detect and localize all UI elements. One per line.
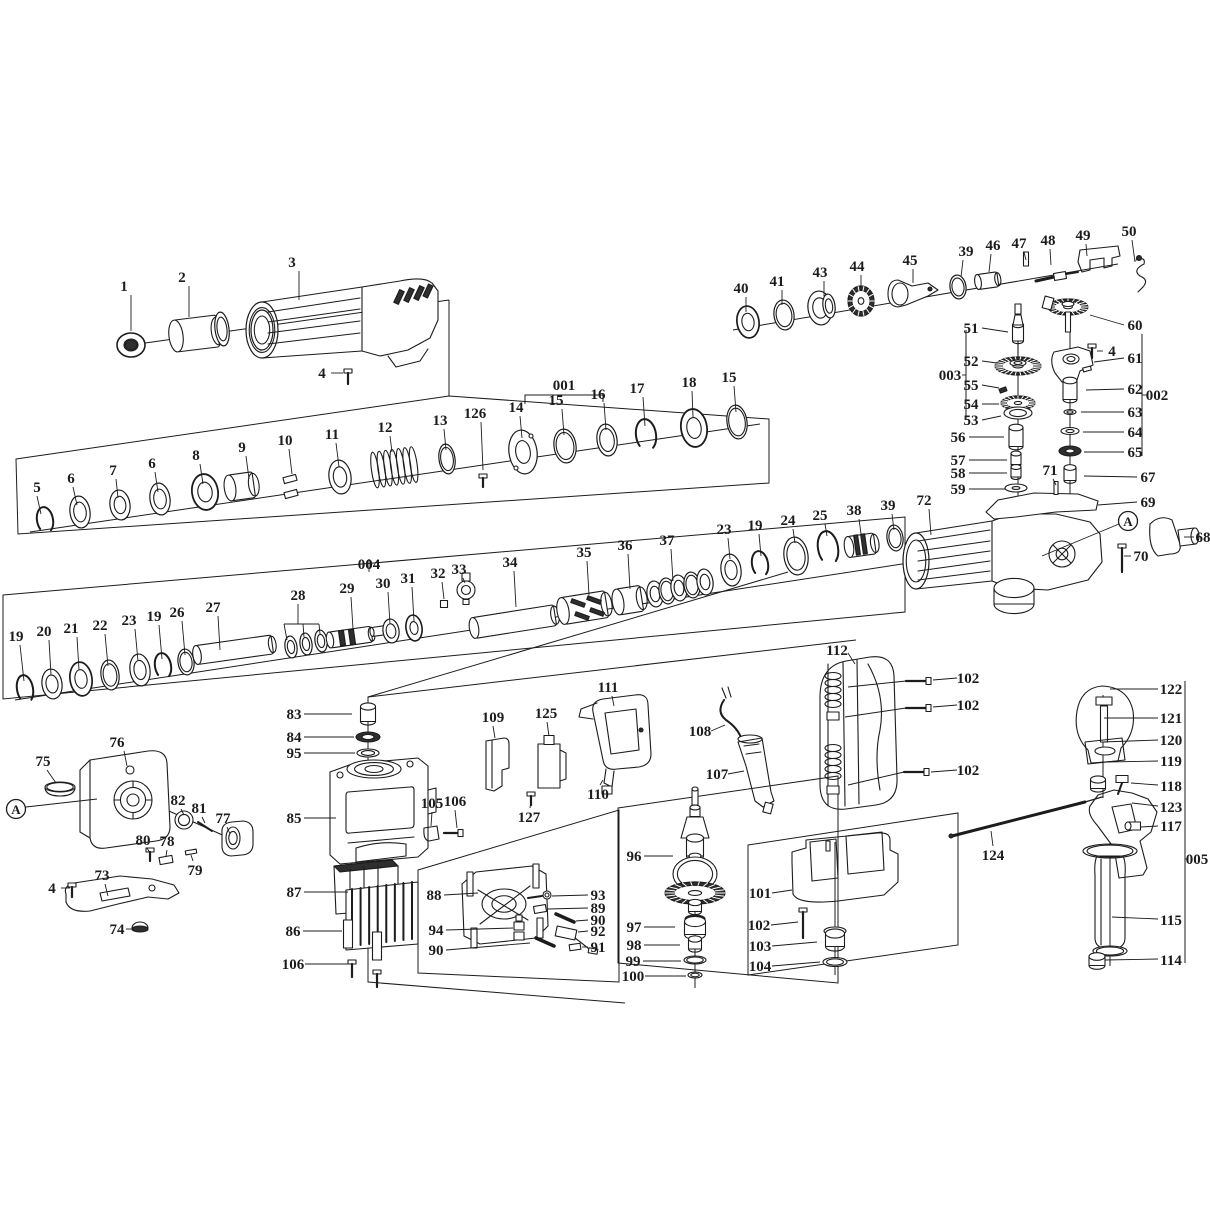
part-number-label: 99 xyxy=(626,954,641,970)
part-number-label: 78 xyxy=(160,834,175,850)
part-number-label: 005 xyxy=(1186,852,1209,868)
part-number-label: 5 xyxy=(33,480,41,496)
part-number-label: 96 xyxy=(627,849,643,865)
part-number-label: 10 xyxy=(278,433,293,449)
part-number-label: 67 xyxy=(1141,470,1157,486)
part-number-label: 53 xyxy=(964,413,979,429)
part-number-label: 104 xyxy=(749,959,772,975)
part-number-label: 121 xyxy=(1160,711,1183,727)
part-number-label: 30 xyxy=(376,576,391,592)
part-number-label: 92 xyxy=(591,924,606,940)
exploded-diagram: 1234404143444539464748495051520035554535… xyxy=(0,0,1210,1210)
part-number-label: 107 xyxy=(706,767,729,783)
part-number-label: 33 xyxy=(452,562,467,578)
part-number-label: 102 xyxy=(748,918,771,934)
part-number-label: 75 xyxy=(36,754,51,770)
part-number-label: 58 xyxy=(951,466,966,482)
part-number-label: 27 xyxy=(206,600,222,616)
part-number-label: 17 xyxy=(630,381,646,397)
part-number-label: 126 xyxy=(464,406,487,422)
part-number-label: 85 xyxy=(287,811,302,827)
part-number-label: 88 xyxy=(427,888,442,904)
part-number-label: 4 xyxy=(1108,344,1116,360)
part-number-label: 106 xyxy=(282,957,305,973)
part-number-label: 36 xyxy=(618,538,634,554)
part-number-label: 19 xyxy=(9,629,24,645)
part-number-label: 15 xyxy=(722,370,737,386)
part-number-label: 004 xyxy=(358,557,381,573)
part-number-label: 101 xyxy=(749,886,772,902)
part-number-label: 117 xyxy=(1160,819,1182,835)
part-number-label: 70 xyxy=(1134,549,1149,565)
part-number-label: 90 xyxy=(429,943,444,959)
part-number-label: 106 xyxy=(444,794,467,810)
part-number-label: 108 xyxy=(689,724,712,740)
part-number-label: 118 xyxy=(1160,779,1182,795)
part-number-label: 125 xyxy=(535,706,558,722)
part-number-label: 23 xyxy=(122,613,137,629)
part-number-label: 120 xyxy=(1160,733,1183,749)
part-number-label: 56 xyxy=(951,430,967,446)
part-number-label: 122 xyxy=(1160,682,1183,698)
part-number-label: 98 xyxy=(627,938,642,954)
part-number-label: 105 xyxy=(421,796,444,812)
part-number-label: 77 xyxy=(216,811,232,827)
part-number-label: 55 xyxy=(964,378,979,394)
part-number-label: 71 xyxy=(1043,463,1058,479)
part-number-label: 69 xyxy=(1141,495,1156,511)
part-number-label: 54 xyxy=(964,397,980,413)
part-number-label: 001 xyxy=(553,378,576,394)
part-number-label: 81 xyxy=(192,801,207,817)
part-number-label: 65 xyxy=(1128,445,1143,461)
part-number-label: 86 xyxy=(286,924,302,940)
part-number-label: 38 xyxy=(847,503,862,519)
view-marker-label: A xyxy=(11,802,21,817)
part-number-label: 43 xyxy=(813,265,828,281)
part-number-label: 35 xyxy=(577,545,592,561)
part-number-label: 6 xyxy=(148,456,156,472)
part-number-label: 9 xyxy=(238,440,246,456)
part-number-label: 13 xyxy=(433,413,448,429)
part-number-label: 91 xyxy=(591,940,606,956)
part-number-label: 83 xyxy=(287,707,302,723)
part-number-label: 82 xyxy=(171,793,186,809)
part-number-label: 74 xyxy=(110,922,126,938)
part-number-label: 003 xyxy=(939,368,962,384)
part-number-label: 18 xyxy=(682,375,697,391)
part-number-label: 102 xyxy=(957,698,980,714)
part-number-label: 73 xyxy=(95,868,110,884)
part-number-label: 47 xyxy=(1012,236,1028,252)
part-number-label: 68 xyxy=(1196,530,1210,546)
part-number-label: 44 xyxy=(850,259,866,275)
part-number-label: 19 xyxy=(147,609,162,625)
part-number-label: 37 xyxy=(660,533,676,549)
part-number-label: 15 xyxy=(549,393,564,409)
part-number-label: 2 xyxy=(178,270,186,286)
part-number-label: 63 xyxy=(1128,405,1143,421)
part-number-label: 52 xyxy=(964,354,979,370)
part-number-label: 32 xyxy=(431,566,446,582)
part-number-label: 31 xyxy=(401,571,416,587)
part-number-label: 61 xyxy=(1128,351,1143,367)
part-number-label: 12 xyxy=(378,420,393,436)
part-number-label: 24 xyxy=(781,513,797,529)
part-number-label: 87 xyxy=(287,885,303,901)
part-number-label: 97 xyxy=(627,920,643,936)
part-number-label: 49 xyxy=(1076,228,1091,244)
part-number-label: 14 xyxy=(509,400,525,416)
part-number-label: 45 xyxy=(903,253,918,269)
part-number-label: 6 xyxy=(67,471,75,487)
part-number-label: 123 xyxy=(1160,800,1183,816)
part-number-label: 124 xyxy=(982,848,1005,864)
part-number-label: 110 xyxy=(587,787,609,803)
part-number-label: 51 xyxy=(964,321,979,337)
part-number-label: 19 xyxy=(748,518,763,534)
part-number-label: 16 xyxy=(591,387,607,403)
part-number-label: 002 xyxy=(1146,388,1169,404)
part-number-label: 76 xyxy=(110,735,126,751)
part-number-label: 3 xyxy=(288,255,296,271)
part-number-label: 48 xyxy=(1041,233,1056,249)
part-number-label: 20 xyxy=(37,624,52,640)
part-number-label: 11 xyxy=(325,427,339,443)
part-number-label: 115 xyxy=(1160,913,1182,929)
part-number-label: 60 xyxy=(1128,318,1143,334)
diagram-canvas: 1234404143444539464748495051520035554535… xyxy=(0,0,1210,1210)
part-number-label: 25 xyxy=(813,508,828,524)
part-number-label: 112 xyxy=(826,643,848,659)
part-number-label: 41 xyxy=(770,274,785,290)
part-number-label: 8 xyxy=(192,448,200,464)
part-number-label: 102 xyxy=(957,671,980,687)
part-number-label: 79 xyxy=(188,863,203,879)
part-number-label: 28 xyxy=(291,588,306,604)
part-number-label: 127 xyxy=(518,810,541,826)
part-number-label: 59 xyxy=(951,482,966,498)
part-number-label: 111 xyxy=(598,680,619,696)
part-number-label: 72 xyxy=(917,493,932,509)
part-number-label: 102 xyxy=(957,763,980,779)
part-number-label: 26 xyxy=(170,605,186,621)
part-number-label: 39 xyxy=(881,498,896,514)
part-number-label: 39 xyxy=(959,244,974,260)
part-number-label: 94 xyxy=(429,923,445,939)
part-number-label: 34 xyxy=(503,555,519,571)
part-number-label: 62 xyxy=(1128,382,1143,398)
part-number-label: 109 xyxy=(482,710,505,726)
part-number-label: 84 xyxy=(287,730,303,746)
part-number-label: 95 xyxy=(287,746,302,762)
part-number-label: 80 xyxy=(136,833,151,849)
part-number-label: 64 xyxy=(1128,425,1144,441)
part-number-label: 4 xyxy=(48,881,56,897)
part-number-label: 7 xyxy=(109,463,117,479)
part-number-label: 22 xyxy=(93,618,108,634)
part-number-label: 1 xyxy=(120,279,128,295)
part-number-label: 21 xyxy=(64,621,79,637)
part-number-label: 100 xyxy=(622,969,645,985)
part-number-label: 103 xyxy=(749,939,772,955)
part-number-label: 29 xyxy=(340,581,355,597)
part-number-label: 23 xyxy=(717,522,732,538)
part-number-label: 4 xyxy=(318,366,326,382)
part-number-label: 46 xyxy=(986,238,1002,254)
part-number-label: 119 xyxy=(1160,754,1182,770)
view-marker-label: A xyxy=(1123,514,1133,529)
part-number-label: 114 xyxy=(1160,953,1182,969)
part-number-label: 40 xyxy=(734,281,749,297)
part-number-label: 50 xyxy=(1122,224,1137,240)
